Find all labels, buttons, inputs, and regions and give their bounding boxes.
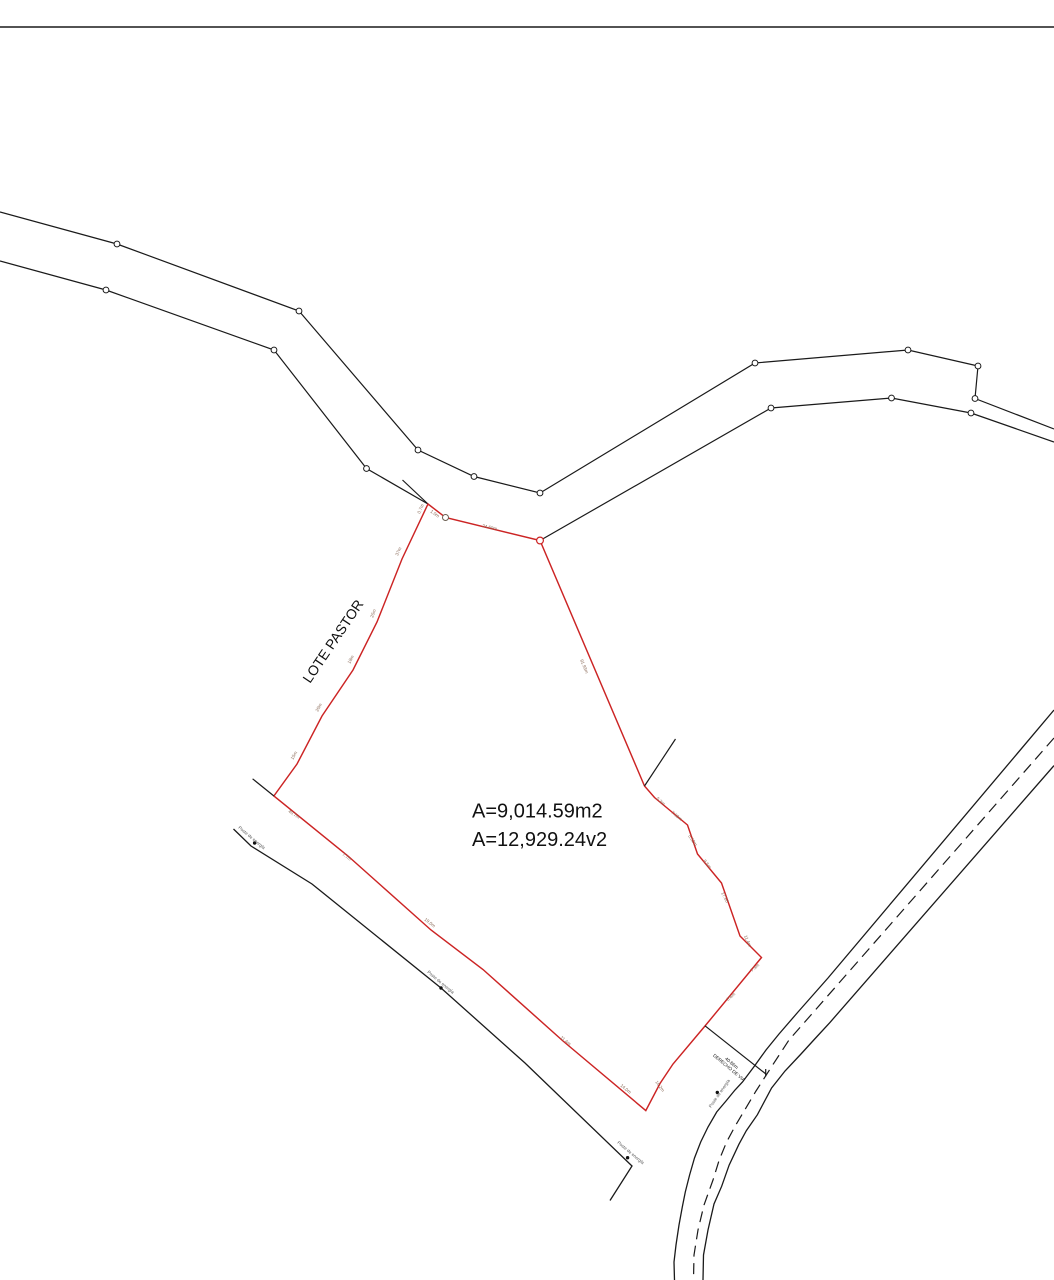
svg-text:Poste de energía: Poste de energía bbox=[616, 1140, 645, 1166]
svg-text:20m: 20m bbox=[314, 702, 323, 712]
svg-text:19.0m: 19.0m bbox=[423, 917, 436, 929]
svg-text:7.7m: 7.7m bbox=[341, 852, 352, 862]
svg-text:7.3m: 7.3m bbox=[749, 962, 760, 972]
svg-text:8.6m: 8.6m bbox=[725, 991, 736, 1001]
svg-text:11.4m: 11.4m bbox=[559, 1035, 572, 1047]
svg-text:25m: 25m bbox=[369, 608, 377, 618]
svg-text:24.60m: 24.60m bbox=[482, 523, 498, 531]
svg-text:Poste de energía: Poste de energía bbox=[426, 969, 455, 995]
svg-text:Poste de energía: Poste de energía bbox=[708, 1078, 732, 1109]
svg-text:1.0m: 1.0m bbox=[429, 509, 440, 519]
svg-text:8.5m: 8.5m bbox=[702, 859, 712, 870]
svg-text:15m: 15m bbox=[290, 750, 299, 760]
svg-text:LOTE PASTOR: LOTE PASTOR bbox=[299, 597, 366, 686]
svg-text:A=12,929.24v2: A=12,929.24v2 bbox=[472, 829, 607, 851]
svg-text:A=9,014.59m2: A=9,014.59m2 bbox=[472, 801, 603, 823]
svg-text:18m: 18m bbox=[346, 654, 355, 664]
svg-text:5.52m: 5.52m bbox=[687, 834, 698, 847]
svg-text:37m: 37m bbox=[394, 546, 402, 556]
svg-text:40.7m: 40.7m bbox=[287, 809, 300, 820]
svg-text:91.93m: 91.93m bbox=[579, 658, 590, 674]
